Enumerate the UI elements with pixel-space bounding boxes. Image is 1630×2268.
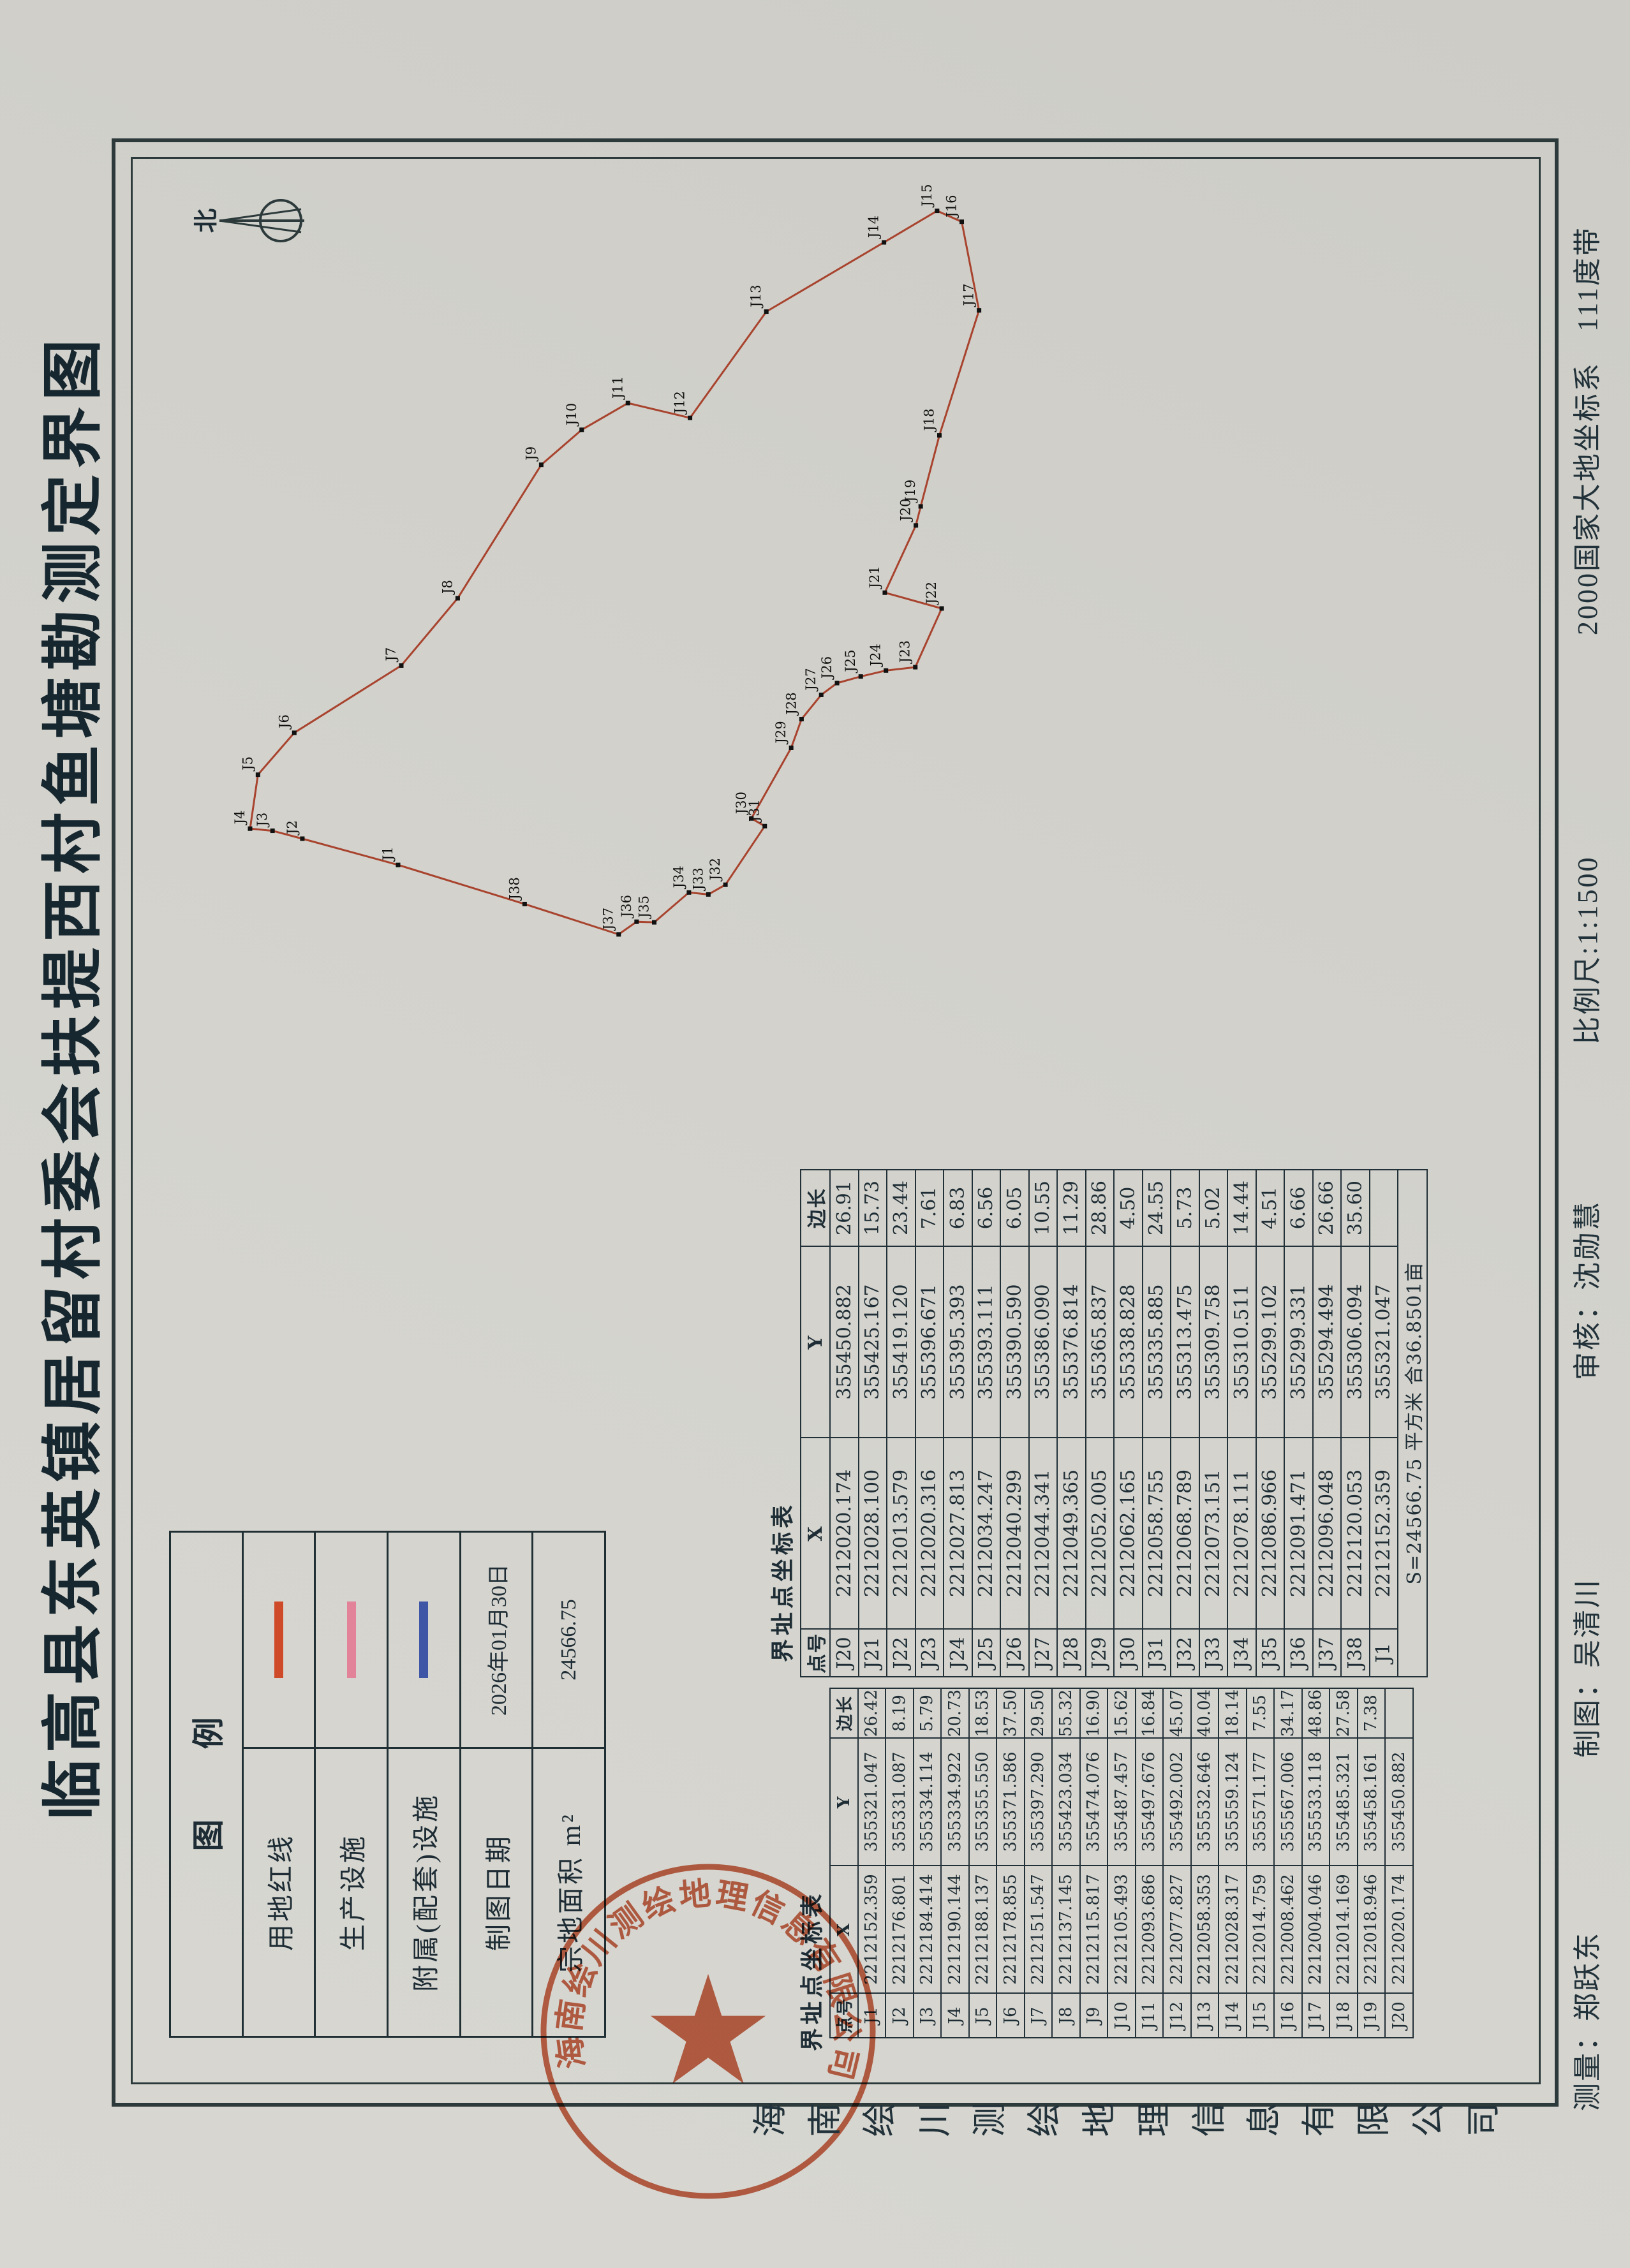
boundary-point-label: J6 xyxy=(276,714,292,730)
boundary-point-label: J35 xyxy=(637,895,652,919)
boundary-point-marker xyxy=(456,596,460,600)
boundary-point-label: J36 xyxy=(619,895,634,918)
boundary-point-marker xyxy=(940,607,944,611)
seal-star-icon xyxy=(651,1974,766,2084)
boundary-point-label: J26 xyxy=(819,656,834,680)
boundary-point-marker xyxy=(882,591,887,595)
coordinate-system-label: 2000国家大地坐标系 111度带 xyxy=(1564,226,1605,635)
boundary-point-marker xyxy=(723,883,728,887)
boundary-point-marker xyxy=(937,433,942,438)
boundary-point-marker xyxy=(686,890,691,895)
boundary-point-marker xyxy=(799,717,804,721)
boundary-point-marker xyxy=(859,674,863,679)
credit-reviewer: 审核：沈勋慧 xyxy=(1564,1200,1605,1380)
boundary-point-label: J24 xyxy=(868,644,884,667)
boundary-point-label: J16 xyxy=(944,195,959,219)
boundary-point-label: J4 xyxy=(232,810,248,825)
boundary-point-label: J13 xyxy=(748,284,764,308)
scale-label: 比例尺:1:1500 xyxy=(1564,856,1605,1045)
boundary-point-marker xyxy=(292,730,297,735)
boundary-point-label: J23 xyxy=(898,640,913,664)
boundary-point-marker xyxy=(652,920,656,925)
boundary-point-label: J2 xyxy=(285,820,300,836)
boundary-point-label: J38 xyxy=(507,877,522,901)
boundary-point-label: J11 xyxy=(610,376,625,400)
boundary-point-label: J14 xyxy=(866,216,882,239)
boundary-point-label: J8 xyxy=(440,580,455,595)
survey-sheet-landscape: 临高县东英镇居留村委会扶提西村鱼塘勘测定界图 北 图例 用地红线 生产设施 xyxy=(0,0,1630,2268)
boundary-point-label: J17 xyxy=(961,284,977,307)
boundary-point-marker xyxy=(579,427,584,432)
boundary-point-label: J12 xyxy=(672,391,688,415)
boundary-point-label: J29 xyxy=(773,721,789,744)
boundary-point-label: J5 xyxy=(240,756,255,772)
boundary-point-label: J21 xyxy=(867,566,882,589)
boundary-point-label: J20 xyxy=(898,499,914,522)
boundary-point-label: J10 xyxy=(564,403,579,427)
boundary-point-marker xyxy=(522,902,527,906)
credit-surveyor: 测量：郑跃东 xyxy=(1564,1931,1605,2111)
photo-of-survey-sheet: 临高县东英镇居留村委会扶提西村鱼塘勘测定界图 北 图例 用地红线 生产设施 xyxy=(0,0,1630,2268)
boundary-point-marker xyxy=(977,308,981,313)
boundary-point-marker xyxy=(539,462,544,467)
boundary-point-marker xyxy=(399,663,403,668)
company-name-vertical: 海南绘川测绘地理信息有限公司 xyxy=(752,2098,1562,2148)
boundary-point-label: J32 xyxy=(708,858,723,881)
boundary-point-marker xyxy=(913,665,917,670)
boundary-point-marker xyxy=(270,828,275,833)
boundary-point-marker xyxy=(764,309,769,314)
boundary-point-marker xyxy=(959,219,964,224)
boundary-point-label: J22 xyxy=(924,582,939,605)
boundary-point-label: J1 xyxy=(380,846,396,862)
boundary-point-marker xyxy=(884,668,888,673)
boundary-point-marker xyxy=(706,892,711,897)
boundary-point-label: J7 xyxy=(383,647,399,663)
boundary-point-label: J37 xyxy=(601,908,616,931)
boundary-point-label: J15 xyxy=(919,184,935,207)
boundary-point-label: J3 xyxy=(255,813,270,828)
boundary-point-marker xyxy=(914,523,918,527)
boundary-point-marker xyxy=(300,836,304,841)
boundary-point-marker xyxy=(789,746,794,750)
boundary-point-label: J34 xyxy=(671,865,686,889)
boundary-point-marker xyxy=(835,681,840,686)
boundary-point-label: J18 xyxy=(921,408,937,432)
boundary-point-label: J9 xyxy=(523,446,538,462)
boundary-point-marker xyxy=(248,827,253,831)
credit-cartographer: 制图：吴清川 xyxy=(1564,1578,1605,1758)
boundary-point-marker xyxy=(935,209,939,213)
boundary-point-marker xyxy=(626,401,630,405)
boundary-point-label: J25 xyxy=(843,650,858,674)
boundary-point-label: J33 xyxy=(690,867,706,891)
boundary-point-marker xyxy=(616,932,621,937)
boundary-point-marker xyxy=(882,240,886,245)
boundary-point-label: J31 xyxy=(747,799,762,823)
boundary-point-marker xyxy=(256,772,260,777)
boundary-point-label: J28 xyxy=(783,692,799,716)
boundary-point-marker xyxy=(634,920,639,924)
boundary-point-marker xyxy=(819,693,824,697)
boundary-point-marker xyxy=(396,863,400,867)
boundary-point-marker xyxy=(919,504,923,508)
boundary-point-label: J27 xyxy=(803,668,819,691)
boundary-point-marker xyxy=(688,416,692,420)
boundary-point-marker xyxy=(762,824,767,828)
company-seal: 海南绘川测绘地理信息有限公司 xyxy=(526,1849,891,2214)
